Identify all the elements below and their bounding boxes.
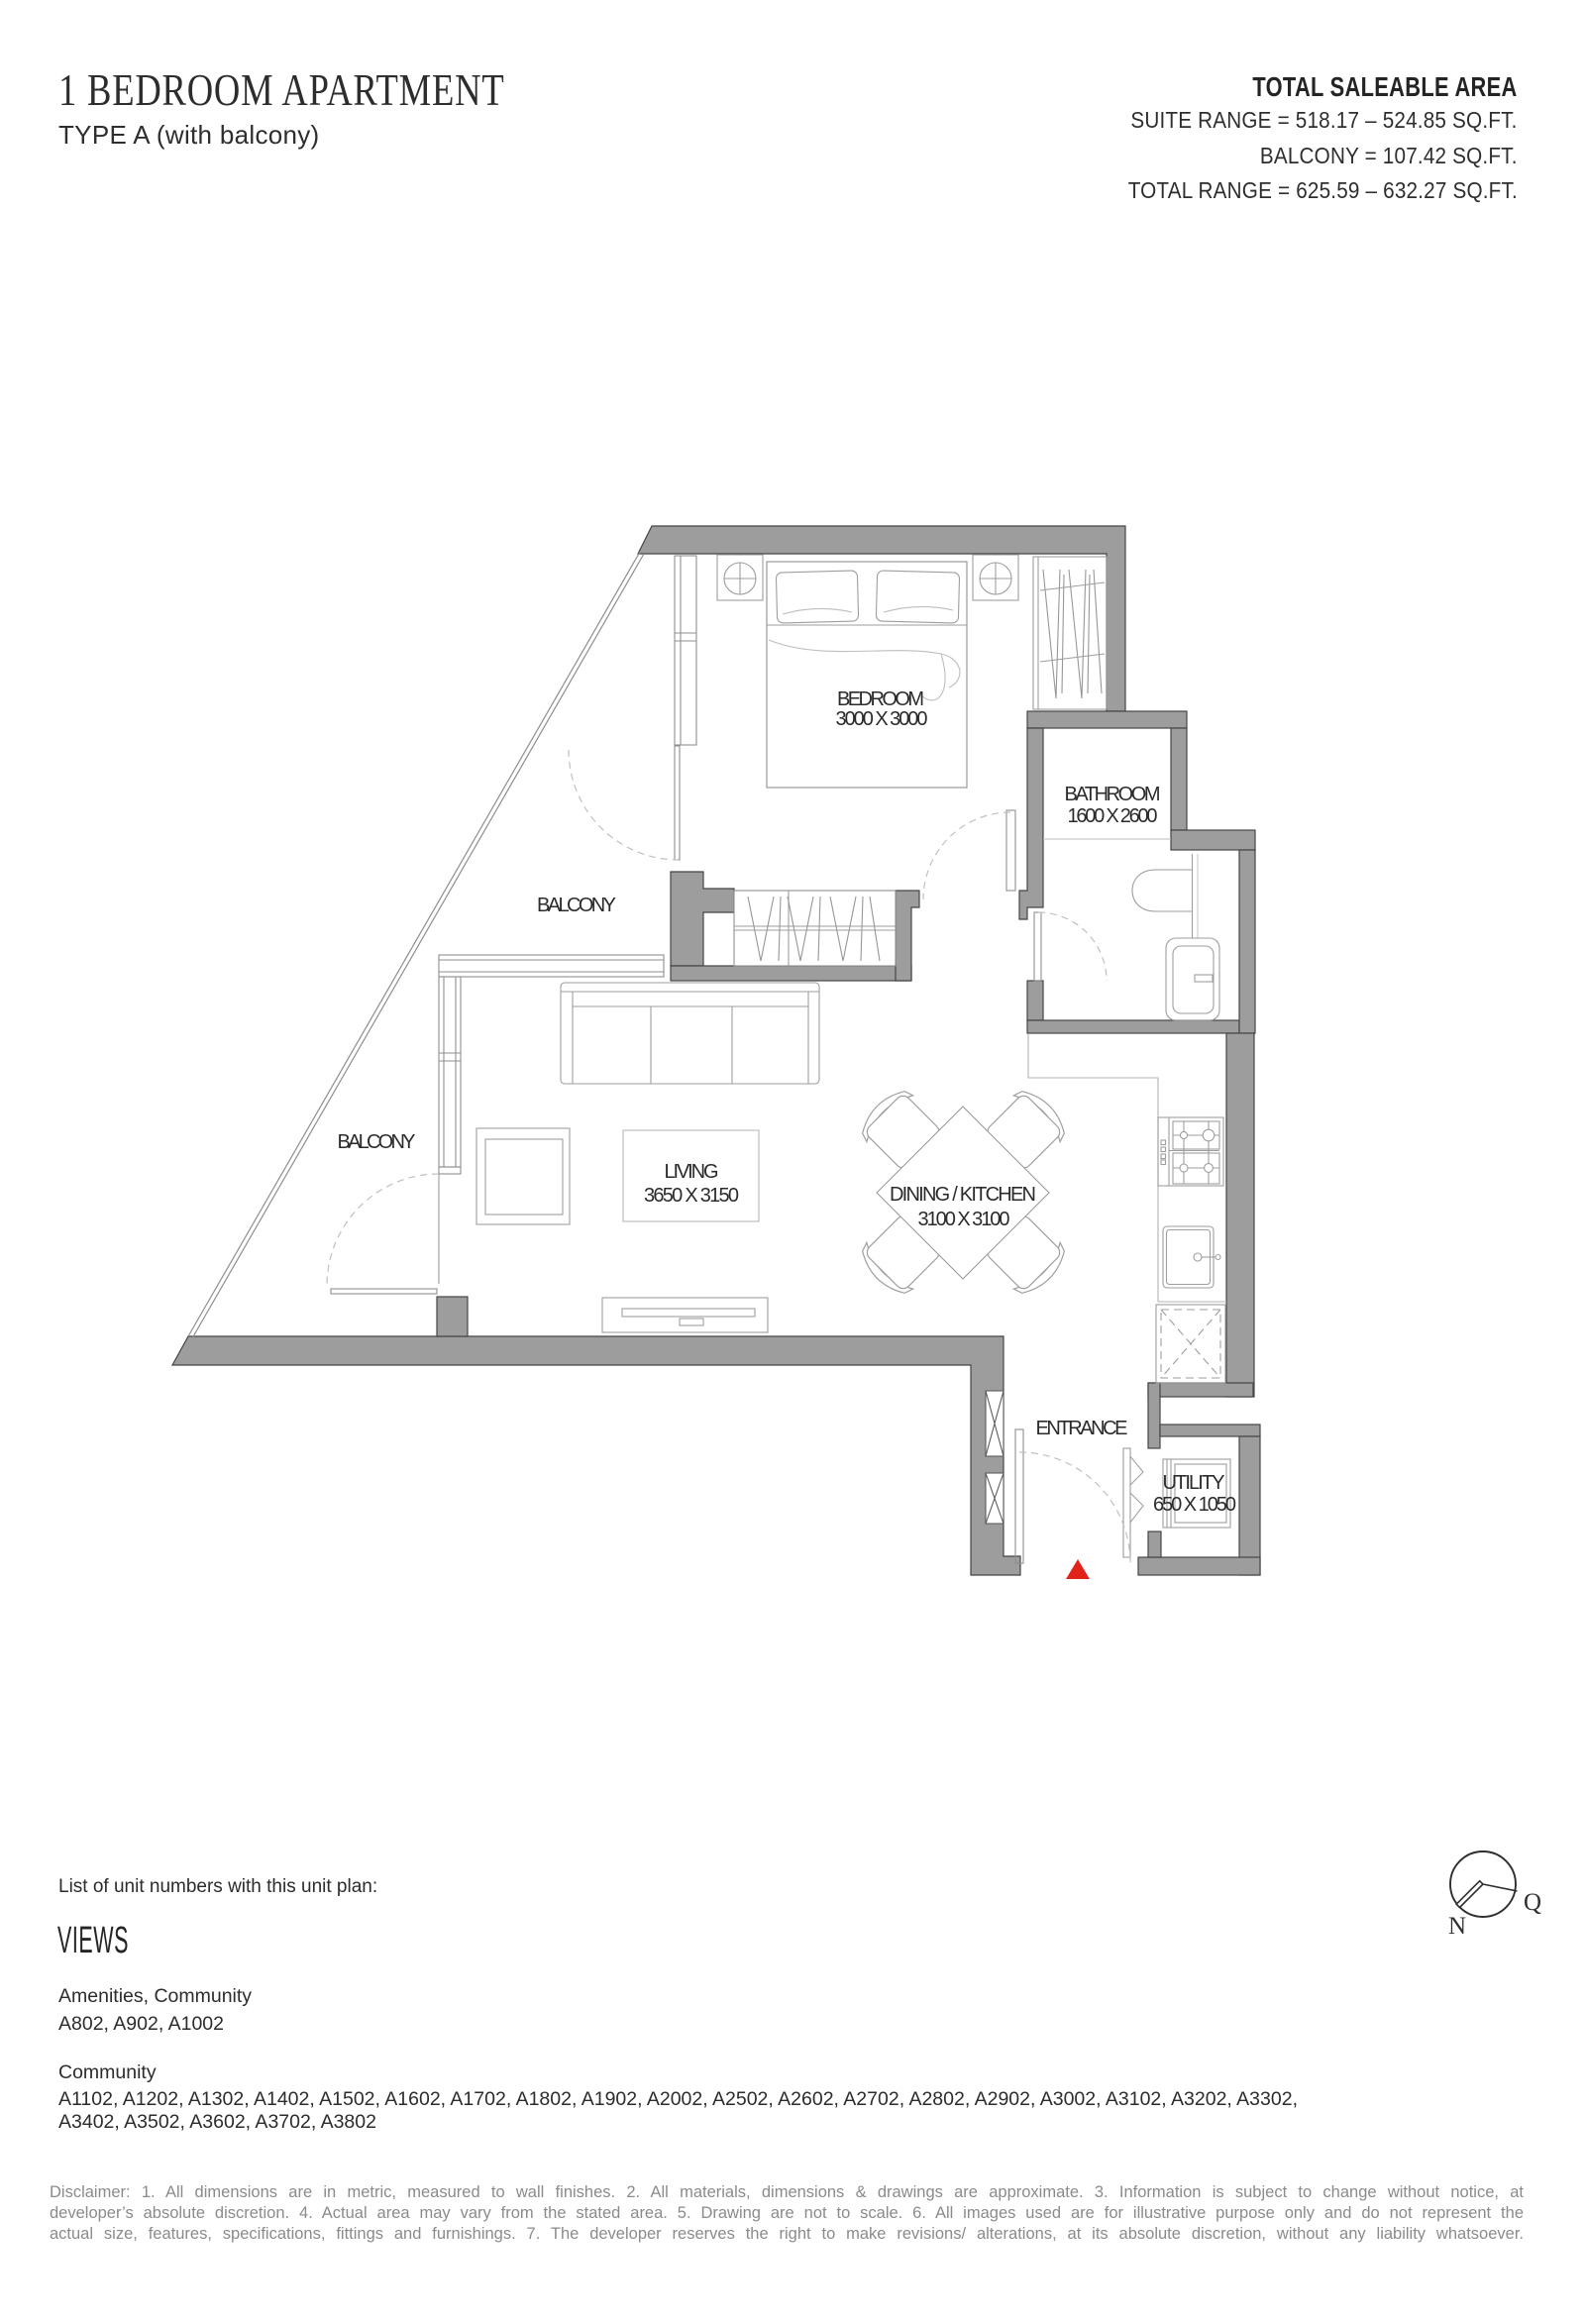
- svg-text:BATHROOM: BATHROOM: [1065, 784, 1161, 805]
- svg-text:ENTRANCE: ENTRANCE: [1036, 1418, 1128, 1439]
- svg-text:DINING / KITCHEN: DINING / KITCHEN: [890, 1184, 1036, 1206]
- svg-text:N: N: [1448, 1913, 1466, 1940]
- svg-text:UTILITY: UTILITY: [1163, 1472, 1225, 1494]
- svg-text:BALCONY: BALCONY: [338, 1131, 416, 1153]
- svg-text:BALCONY: BALCONY: [537, 895, 616, 916]
- svg-text:1600 X 2600: 1600 X 2600: [1068, 805, 1158, 827]
- svg-text:3650 X 3150: 3650 X 3150: [644, 1185, 739, 1207]
- svg-text:3000 X 3000: 3000 X 3000: [836, 708, 928, 730]
- svg-text:3100 X 3100: 3100 X 3100: [918, 1209, 1010, 1230]
- svg-text:LIVING: LIVING: [665, 1161, 719, 1183]
- svg-text:Q: Q: [1524, 1889, 1541, 1916]
- svg-text:BEDROOM: BEDROOM: [837, 688, 924, 710]
- svg-text:650 X 1050: 650 X 1050: [1153, 1494, 1236, 1516]
